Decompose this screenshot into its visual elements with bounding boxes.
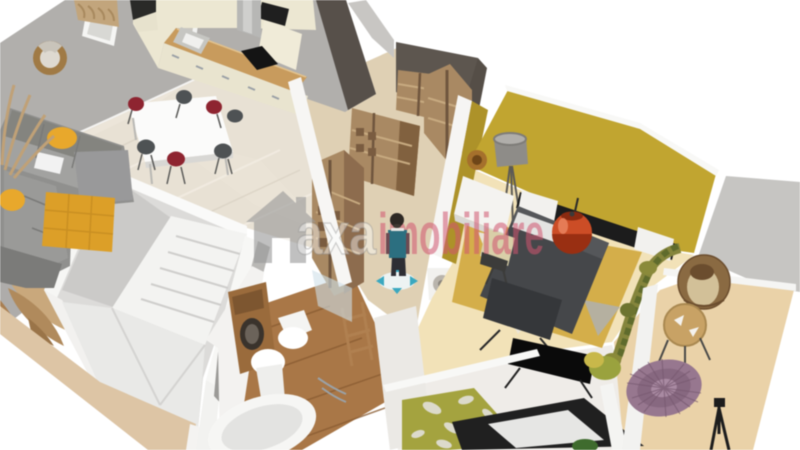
- svg-text:axa: axa: [296, 202, 377, 267]
